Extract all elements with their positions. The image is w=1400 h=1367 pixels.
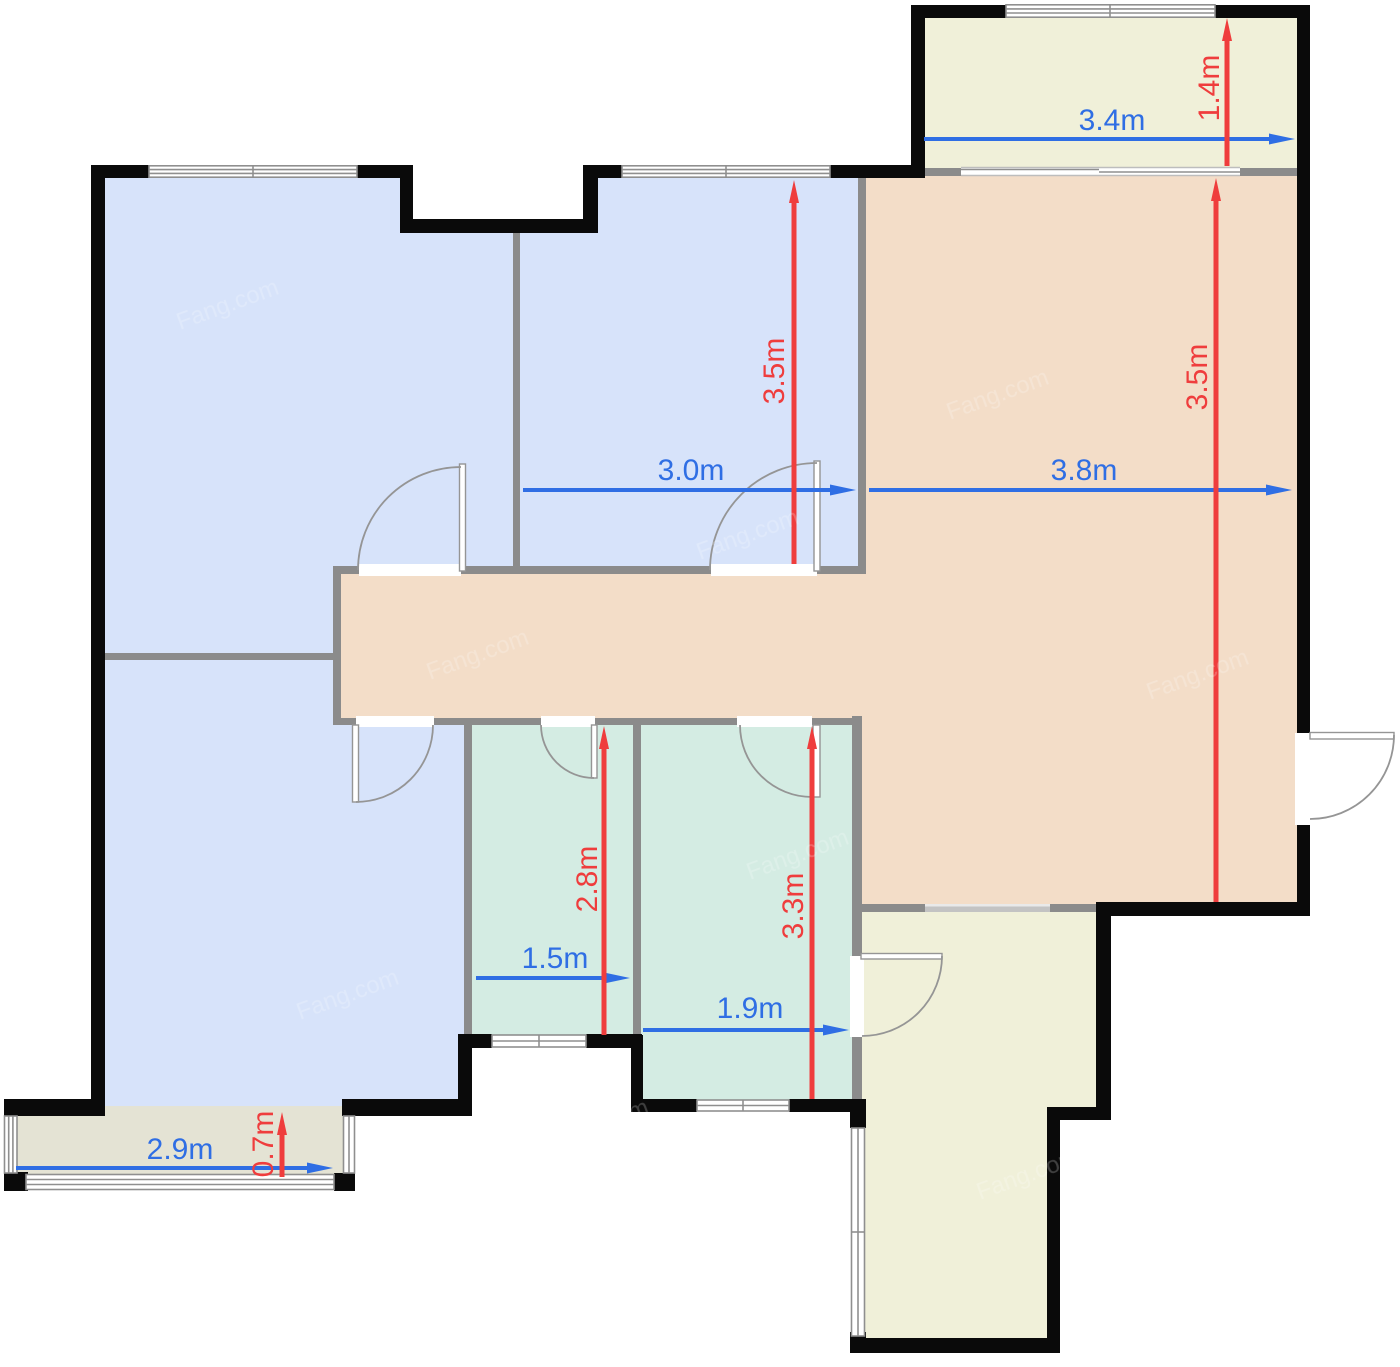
svg-text:3.5m: 3.5m [758,338,791,405]
svg-text:1.4m: 1.4m [1193,55,1226,122]
svg-text:2.9m: 2.9m [147,1133,214,1166]
svg-text:3.3m: 3.3m [777,873,810,940]
svg-text:3.0m: 3.0m [658,454,725,487]
svg-text:0.7m: 0.7m [247,1111,280,1178]
svg-text:3.4m: 3.4m [1079,104,1146,137]
svg-text:3.5m: 3.5m [1181,344,1214,411]
svg-text:1.5m: 1.5m [522,942,589,975]
svg-text:2.8m: 2.8m [571,846,604,913]
svg-text:3.8m: 3.8m [1051,454,1118,487]
svg-text:1.9m: 1.9m [717,992,784,1025]
